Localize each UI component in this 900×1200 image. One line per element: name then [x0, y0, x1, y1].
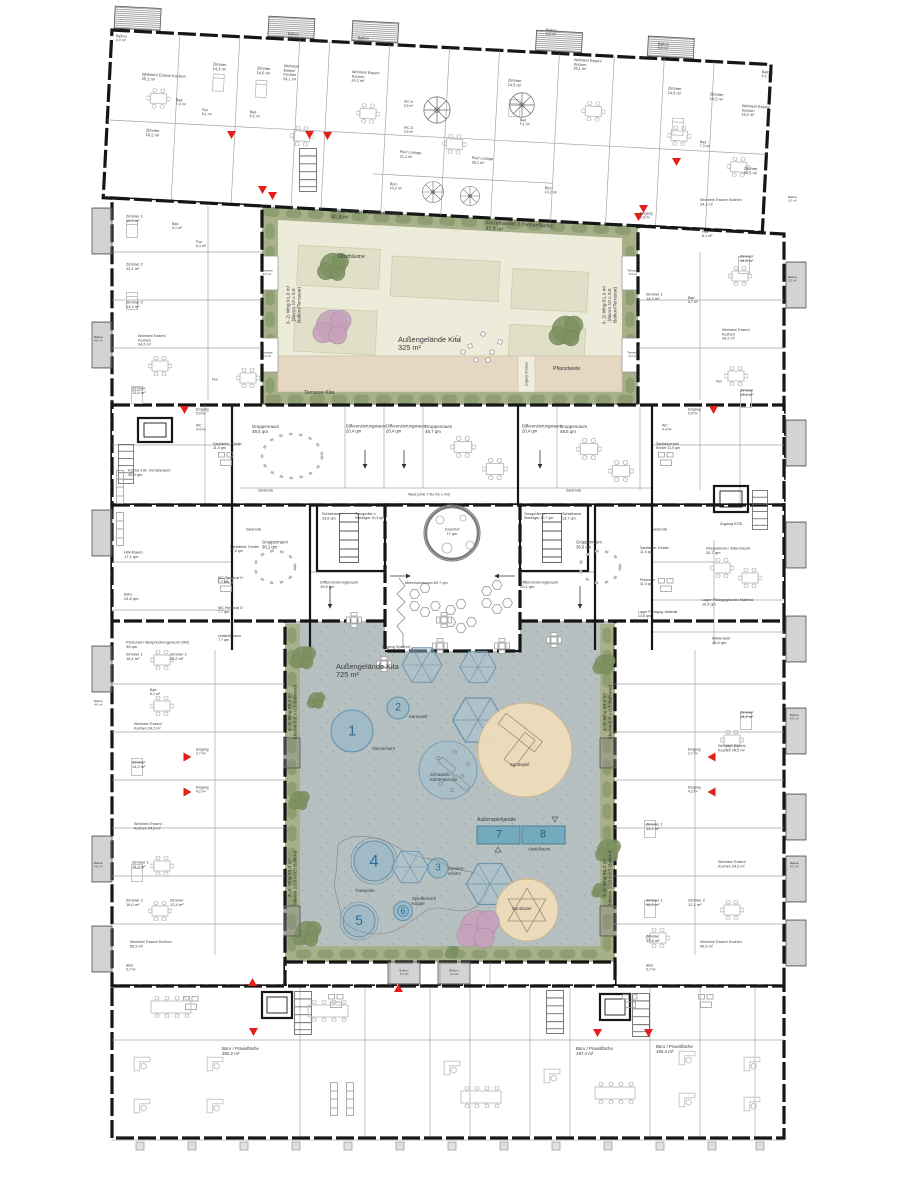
- top-band: [103, 6, 772, 232]
- spiral-stair-icon: [460, 186, 479, 205]
- floor-plan: Balkon 4,0 m²Wohnen/ Essen/ Kochen 25,1 …: [0, 0, 900, 1200]
- colonnade: [112, 1140, 784, 1150]
- plan-drawing: [0, 0, 900, 1200]
- spiral-stair-icon: [423, 182, 444, 203]
- central-hall: [385, 505, 520, 651]
- upper-courtyard: [256, 206, 644, 405]
- spiral-stair-icon: [424, 97, 450, 123]
- sandpit: [478, 703, 572, 797]
- kita-middle-band: [112, 405, 784, 505]
- spiral-stair-icon: [510, 93, 535, 118]
